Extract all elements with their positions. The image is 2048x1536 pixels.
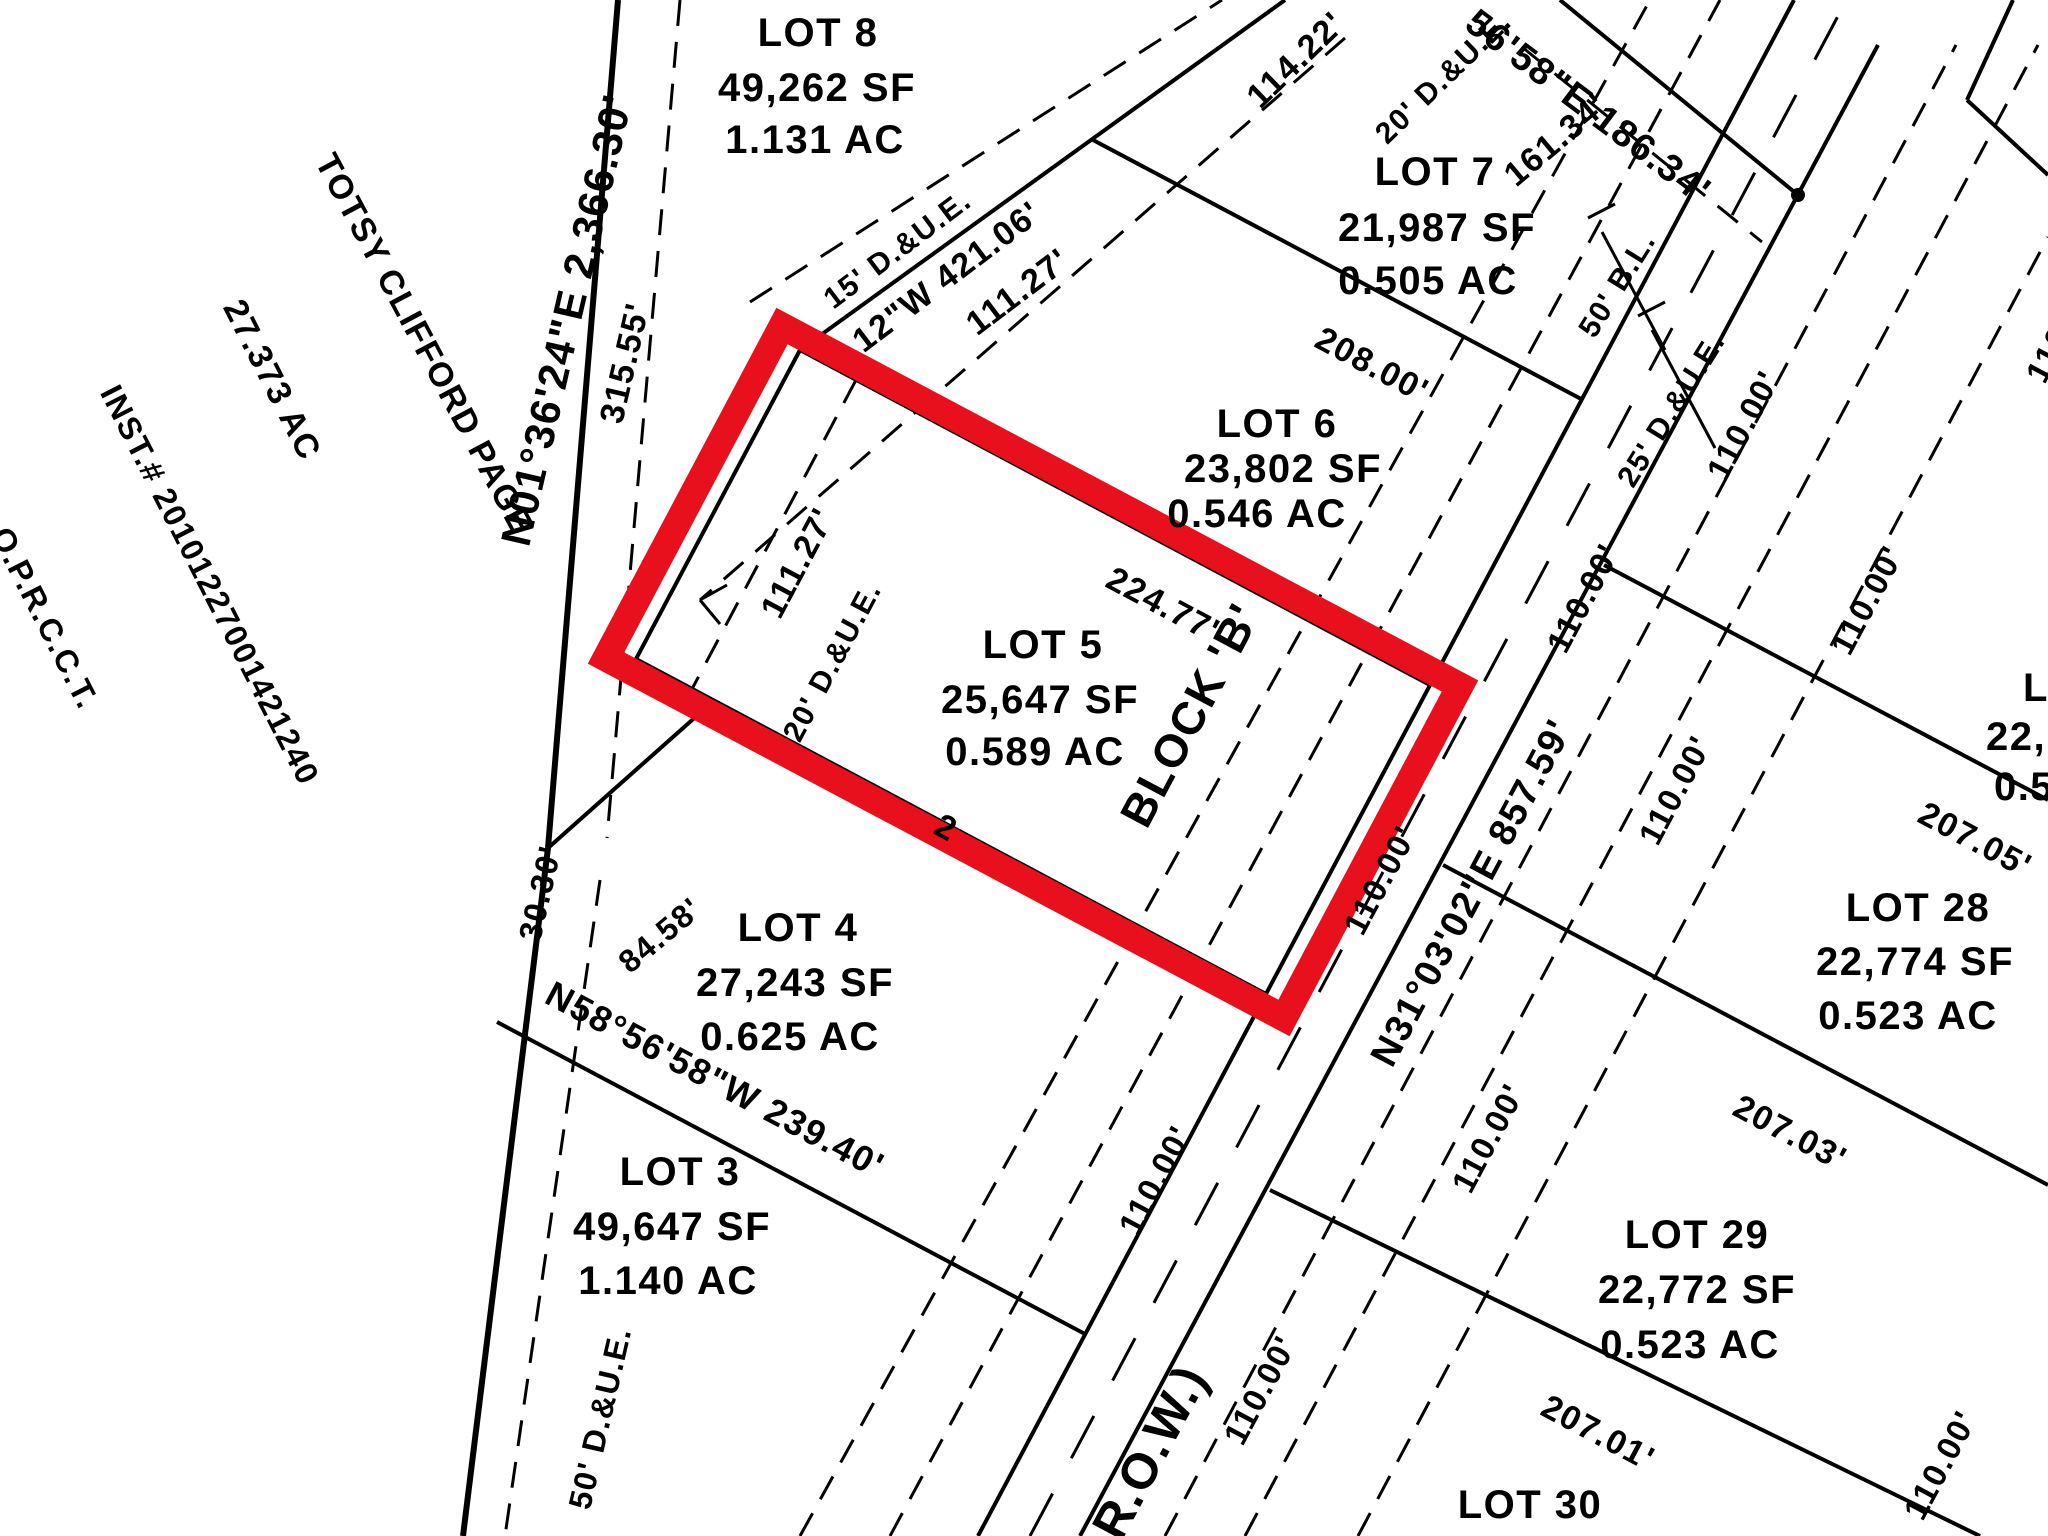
plat-map: TOTSY CLIFFORD PAGE27.373 ACINST.# 20101… — [0, 0, 2048, 1536]
lot28-title: LOT 28 — [1846, 888, 1991, 928]
lot7-sf: 21,987 SF — [1338, 208, 1536, 248]
lot4-ac: 0.625 AC — [700, 1017, 880, 1057]
arrowhead-b — [700, 600, 720, 624]
lot27-ac-partial: 0.5 — [1994, 767, 2048, 807]
lot5-ac: 0.589 AC — [945, 732, 1125, 772]
lot7-ac: 0.505 AC — [1338, 261, 1518, 301]
lot3-sf: 49,647 SF — [573, 1207, 771, 1247]
corner-monument-dot — [1791, 188, 1805, 202]
lot7-title: LOT 7 — [1375, 152, 1496, 192]
lot8-sf: 49,262 SF — [718, 68, 916, 108]
lot30-title: LOT 30 — [1458, 1485, 1603, 1525]
ne-corner-b — [1967, 100, 2048, 175]
lot29-title: LOT 29 — [1625, 1215, 1770, 1255]
lot29-ac: 0.523 AC — [1600, 1325, 1780, 1365]
lot5-sf: 25,647 SF — [941, 680, 1139, 720]
bracket-50bl-hook — [1588, 204, 1615, 218]
lot29-sf: 22,772 SF — [1598, 1270, 1796, 1310]
lot8-title: LOT 8 — [758, 13, 879, 53]
lot3-title: LOT 3 — [620, 1152, 741, 1192]
lot28-ac: 0.523 AC — [1818, 996, 1998, 1036]
lot6-ac: 0.546 AC — [1167, 494, 1347, 534]
jog-84-58 — [548, 713, 700, 848]
lot6-title: LOT 6 — [1217, 404, 1338, 444]
lot3-ac: 1.140 AC — [578, 1261, 758, 1301]
lot27-title-partial: L — [2023, 668, 2048, 708]
lot28-sf: 22,774 SF — [1816, 942, 2014, 982]
lot8-ac: 1.131 AC — [725, 120, 905, 160]
west-boundary-lower — [463, 848, 548, 1536]
lot5-title: LOT 5 — [983, 625, 1104, 665]
lot4-sf: 27,243 SF — [696, 963, 894, 1003]
lot4-title: LOT 4 — [738, 908, 859, 948]
lot6-sf: 23,802 SF — [1184, 449, 1382, 489]
arrowhead-a — [700, 585, 727, 600]
ne-corner-a — [1967, 0, 2013, 100]
dashed-bl-east-a — [1165, 45, 1956, 1536]
lot27-sf-partial: 22, — [1986, 717, 2046, 757]
